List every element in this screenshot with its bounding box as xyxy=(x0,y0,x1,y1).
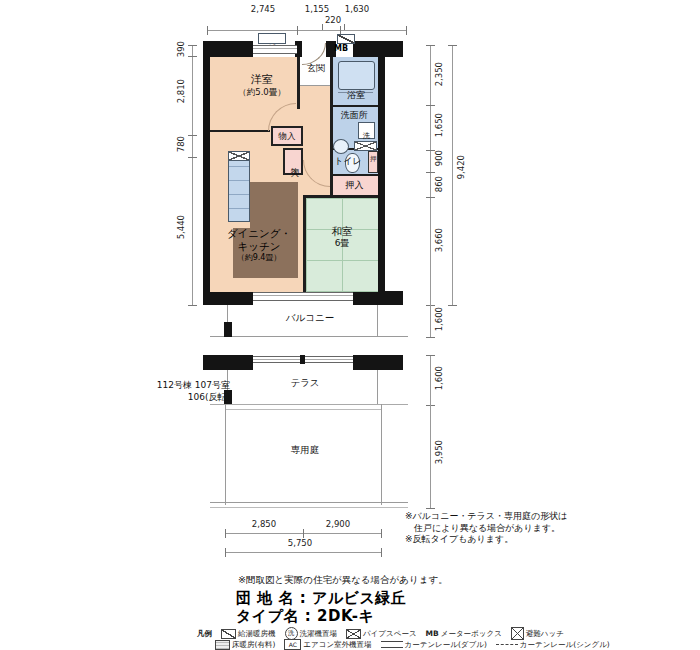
dimension-tick xyxy=(426,197,435,198)
toire-label: トイレ xyxy=(328,156,368,167)
dimension-line xyxy=(430,355,431,405)
garden-bottom-line2 xyxy=(210,507,408,508)
dim-bottom-5750: 5,750 xyxy=(274,538,326,548)
dk-name-1: ダイニング・ xyxy=(214,227,304,240)
bathtub xyxy=(338,61,375,90)
dimension-line xyxy=(430,45,431,305)
dimension-line xyxy=(192,45,193,305)
terrace-side-line xyxy=(377,370,378,405)
terrace-wall-right xyxy=(353,355,403,370)
floor-heating-icon xyxy=(215,640,230,650)
yokushitsu-label: 浴室 xyxy=(337,90,375,101)
dimension-tick xyxy=(188,157,197,158)
dimension-tick xyxy=(207,26,208,35)
legend-item-curtain-double: カーテンレール(ダブル) xyxy=(381,640,487,650)
dimension-tick xyxy=(426,105,435,106)
dimension-tick xyxy=(448,305,457,306)
dimension-tick xyxy=(188,135,197,136)
unit-info-line2: 106(反転) xyxy=(128,391,230,403)
garden-label: 専用庭 xyxy=(275,444,335,456)
dim-terrace-1600: 1,600 xyxy=(434,366,444,390)
wall-bottom-right-block xyxy=(353,291,403,305)
dimension-line xyxy=(452,45,453,305)
dimension-tick xyxy=(426,45,435,46)
wall-top-left-block xyxy=(203,41,253,57)
pipe-space-icon xyxy=(346,629,361,639)
pipe-space-icon xyxy=(354,141,377,151)
dk-label: ダイニング・ キッチン （約9.4畳） xyxy=(214,227,304,263)
washing-machine-label: 洗 xyxy=(363,132,370,140)
genkan-label: 玄関 xyxy=(301,63,331,74)
kitchen-counter xyxy=(228,151,250,222)
legend-item-ac-unit: AC エアコン室外機置場 xyxy=(284,639,371,650)
garden-bottom-line xyxy=(210,502,408,503)
legend-label: 給湯暖房機 xyxy=(238,629,276,639)
dim-garden-3950: 3,950 xyxy=(434,440,444,464)
terrace-post xyxy=(300,355,305,364)
legend-title: 凡例 xyxy=(197,629,212,639)
water-heater-icon xyxy=(337,34,355,44)
legend-item-curtain-single: カーテンレール(シングル) xyxy=(496,640,610,650)
window-balcony xyxy=(253,292,353,301)
unit-info: 112号棟 107号室 106(反転) xyxy=(128,379,230,403)
garden-side-line xyxy=(381,404,382,505)
dim-balcony-1600: 1,600 xyxy=(434,307,444,331)
curtain-rail-single-icon xyxy=(496,644,518,646)
mononyu-label: 物入 xyxy=(273,131,301,142)
floor-heating-area xyxy=(250,182,298,228)
wall-mb-section xyxy=(353,41,385,57)
yoshitsu-label: 洋室 （約5.0畳） xyxy=(222,73,302,97)
dimension-tick xyxy=(448,45,457,46)
dimension-tick xyxy=(344,24,345,30)
garden-top-line xyxy=(210,404,408,405)
shape-note-line1: ※バルコニー・テラス・専用庭の形状は xyxy=(405,511,567,523)
oshi-label: 押 xyxy=(370,155,377,163)
dimension-line xyxy=(430,405,431,508)
unit-info-line1: 112号棟 107号室 xyxy=(128,379,230,391)
dk-size: （約9.4畳） xyxy=(214,253,304,263)
balcony-pillar xyxy=(224,322,232,337)
wall-bottom-left-block xyxy=(203,291,253,305)
yoshitsu-size: （約5.0畳） xyxy=(222,87,302,98)
shape-note-line3: ※反転タイプもあります。 xyxy=(405,534,567,546)
garden-side-line xyxy=(225,404,226,505)
dimension-tick xyxy=(303,529,304,538)
legend-label: 床暖房(有料) xyxy=(232,640,275,650)
dimension-tick xyxy=(381,548,382,557)
yoshitsu-name: 洋室 xyxy=(222,73,302,87)
dimension-tick xyxy=(225,529,226,538)
shape-note-line2: 住戸により異なる場合があります。 xyxy=(405,523,567,535)
dimension-tick xyxy=(322,24,323,30)
sink-icon xyxy=(333,139,349,154)
wall-right xyxy=(378,41,385,305)
balcony-side-line xyxy=(377,305,378,337)
dimension-tick xyxy=(426,337,435,338)
dimension-tick xyxy=(426,355,435,356)
dimension-tick xyxy=(426,508,435,509)
dim-right-2350: 2,350 xyxy=(434,62,444,86)
wall-hall-wetarea xyxy=(330,57,333,197)
dimension-tick xyxy=(426,172,435,173)
legend-label: 避難ハッチ xyxy=(526,629,564,639)
dim-top-1155: 1,155 xyxy=(297,4,337,14)
legend-row-2: 床暖房(有料) AC エアコン室外機置場 カーテンレール(ダブル) カーテンレー… xyxy=(215,639,610,650)
dim-left-2810: 2,810 xyxy=(176,79,186,103)
water-heater-icon xyxy=(221,629,236,639)
dimension-line xyxy=(207,30,407,31)
washitsu-label: 和室 6畳 xyxy=(318,225,366,249)
shape-note: ※バルコニー・テラス・専用庭の形状は 住戸により異なる場合があります。 ※反転タ… xyxy=(405,511,567,546)
dimension-tick xyxy=(297,26,298,35)
terrace-wall-left xyxy=(203,355,253,370)
dim-right-3660: 3,660 xyxy=(434,228,444,252)
mononyu-label: 物入 xyxy=(289,150,299,174)
balcony-label: バルコニー xyxy=(265,312,355,324)
dim-left-390: 390 xyxy=(176,41,186,57)
dimension-tick xyxy=(225,548,226,557)
dk-name-2: キッチン xyxy=(214,240,304,253)
dim-bottom-2850: 2,850 xyxy=(238,519,290,529)
ac-outdoor-icon: AC xyxy=(284,639,301,650)
dimension-tick xyxy=(188,305,197,306)
dim-right-860: 860 xyxy=(434,176,444,192)
wall-toire-oshiire xyxy=(330,174,378,176)
range-hood-icon xyxy=(228,151,250,161)
dimension-tick xyxy=(381,529,382,538)
danchi-name: 団 地 名 : アルビス緑丘 xyxy=(236,589,406,608)
legend-label: カーテンレール(シングル) xyxy=(520,640,610,650)
terrace-label: テラス xyxy=(275,377,335,389)
washitsu-name: 和室 xyxy=(318,225,366,238)
dim-bottom-2900: 2,900 xyxy=(312,519,364,529)
dim-top-1630: 1,630 xyxy=(337,4,377,14)
legend-label: パイプスペース xyxy=(363,629,417,639)
wall-washitsu-top xyxy=(303,195,378,198)
ac-outdoor-unit-box: AC xyxy=(258,33,286,44)
curtain-rail-double-icon xyxy=(381,641,403,648)
dimension-line xyxy=(430,305,431,337)
dimension-line xyxy=(225,552,382,553)
senmenjo-label: 洗面所 xyxy=(331,110,377,121)
dim-left-5440: 5,440 xyxy=(176,215,186,239)
dimension-tick xyxy=(188,56,197,57)
madori-note: ※間取図と実際の住宅が異なる場合があります。 xyxy=(238,574,448,587)
washitsu-size: 6畳 xyxy=(318,238,366,249)
wall-bath-senmenjo xyxy=(333,105,378,107)
legend-label: エアコン室外機置場 xyxy=(303,640,371,650)
dimension-tick xyxy=(188,45,197,46)
mb-label: MB xyxy=(330,44,352,54)
legend-item-floor-heating: 床暖房(有料) xyxy=(215,640,275,650)
closet-oshi-small: 押 xyxy=(368,151,378,173)
legend-item-meter-box: MB メーターボックス xyxy=(426,629,502,639)
legend-label: カーテンレール(ダブル) xyxy=(405,640,487,650)
window-yoshitsu-top xyxy=(253,45,297,54)
dim-top-2745: 2,745 xyxy=(238,4,288,14)
dimension-tick xyxy=(406,26,407,35)
closet-mononyu-2: 物入 xyxy=(283,148,303,175)
oshiire-label: 押入 xyxy=(332,180,377,191)
legend-label: メーターボックス xyxy=(441,629,502,639)
type-name: タイプ名 : 2DK-キ xyxy=(236,607,374,626)
meter-box-icon: MB xyxy=(426,629,439,638)
wall-left xyxy=(203,41,210,305)
dim-left-780: 780 xyxy=(176,136,186,152)
legend-item-pipe-space: パイプスペース xyxy=(346,629,417,639)
washing-machine-box: 洗 xyxy=(358,122,375,139)
wall-yoshitsu-bottom xyxy=(210,130,270,132)
dim-right-1650: 1,650 xyxy=(434,113,444,137)
garden-top-line2 xyxy=(225,409,382,410)
dim-right-900: 900 xyxy=(434,150,444,166)
floor-plan-page: 2,745 1,155 1,630 220 390 2,810 780 5,44… xyxy=(0,0,700,650)
dim-right-9420: 9,420 xyxy=(456,155,466,179)
legend-item-water-heater: 給湯暖房機 xyxy=(221,629,276,639)
balcony-edge-line xyxy=(210,336,408,337)
legend-label: 洗濯機置場 xyxy=(300,629,338,639)
